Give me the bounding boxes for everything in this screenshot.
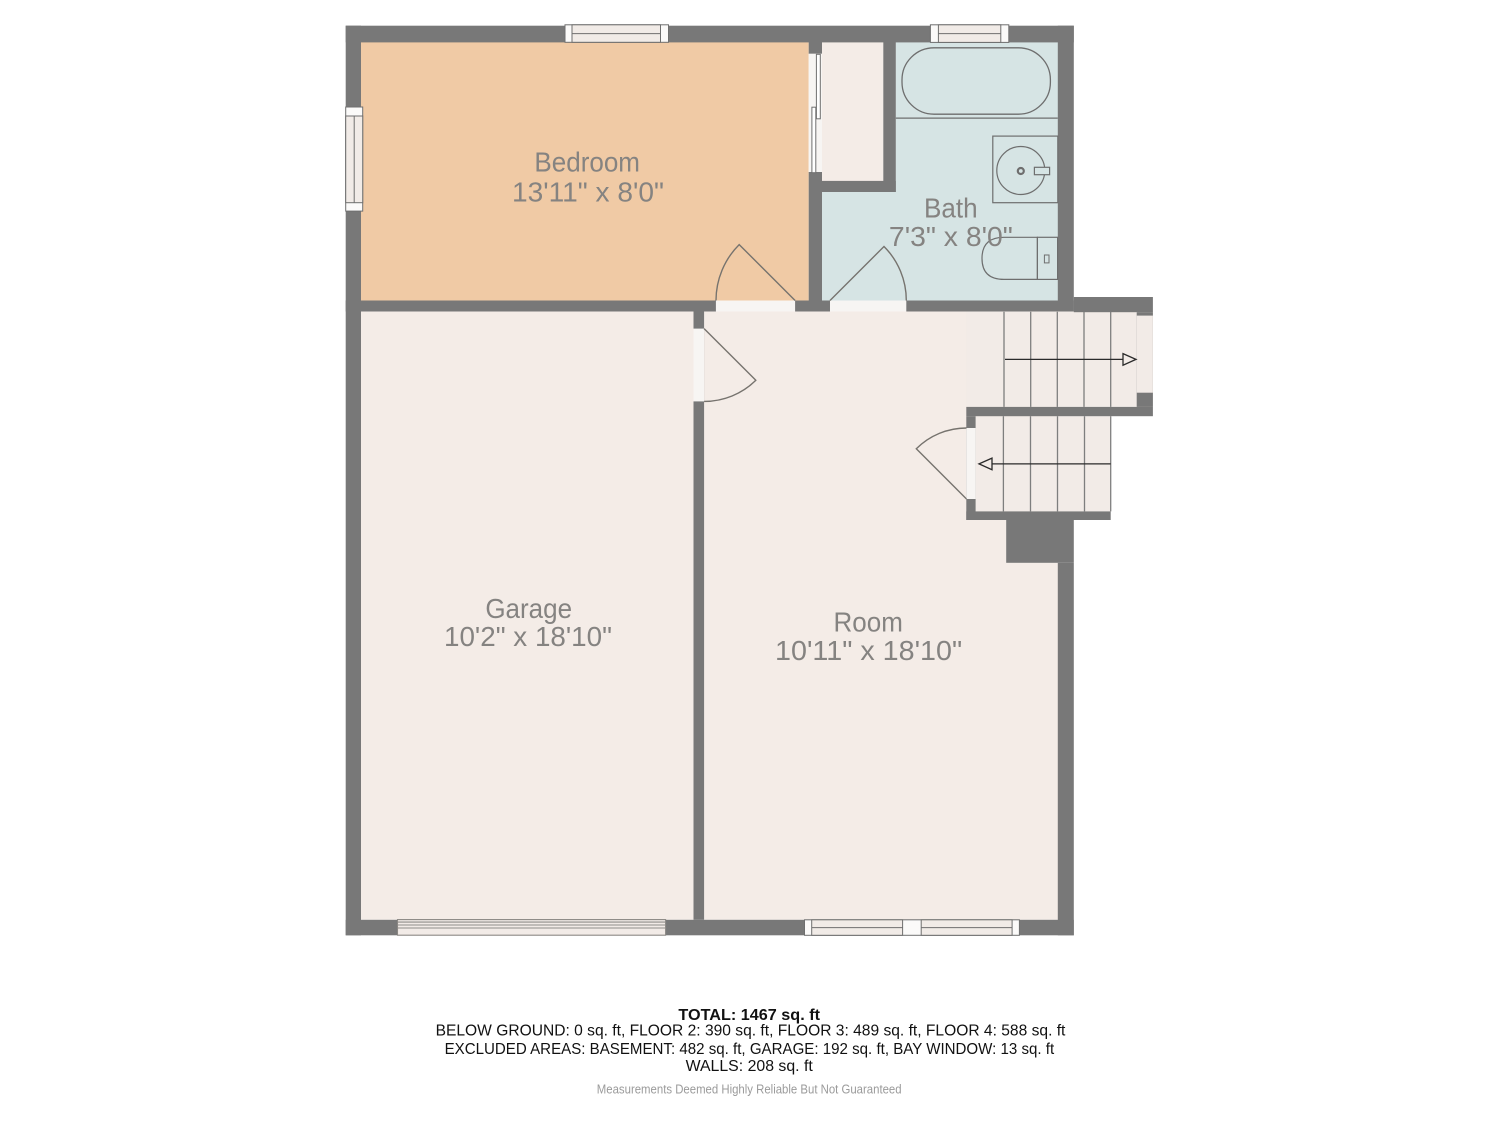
- svg-text:TOTAL: 1467 sq. ft: TOTAL: 1467 sq. ft: [678, 1007, 820, 1024]
- svg-text:Garage: Garage: [485, 593, 572, 624]
- svg-text:EXCLUDED AREAS: BASEMENT: 482: EXCLUDED AREAS: BASEMENT: 482 sq. ft, GA…: [445, 1041, 1055, 1058]
- svg-text:13'11" x 8'0": 13'11" x 8'0": [512, 177, 664, 208]
- svg-text:Bath: Bath: [924, 192, 978, 223]
- svg-text:10'2" x 18'10": 10'2" x 18'10": [444, 621, 612, 652]
- svg-text:7'3" x 8'0": 7'3" x 8'0": [889, 221, 1013, 252]
- svg-text:Measurements Deemed Highly Rel: Measurements Deemed Highly Reliable But …: [597, 1083, 902, 1097]
- svg-text:Room: Room: [834, 606, 903, 637]
- svg-text:BELOW GROUND: 0 sq. ft, FLOOR: BELOW GROUND: 0 sq. ft, FLOOR 2: 390 sq.…: [436, 1023, 1066, 1040]
- svg-text:10'11" x 18'10": 10'11" x 18'10": [775, 635, 962, 666]
- svg-text:WALLS: 208 sq. ft: WALLS: 208 sq. ft: [686, 1058, 814, 1075]
- svg-text:Bedroom: Bedroom: [534, 147, 640, 178]
